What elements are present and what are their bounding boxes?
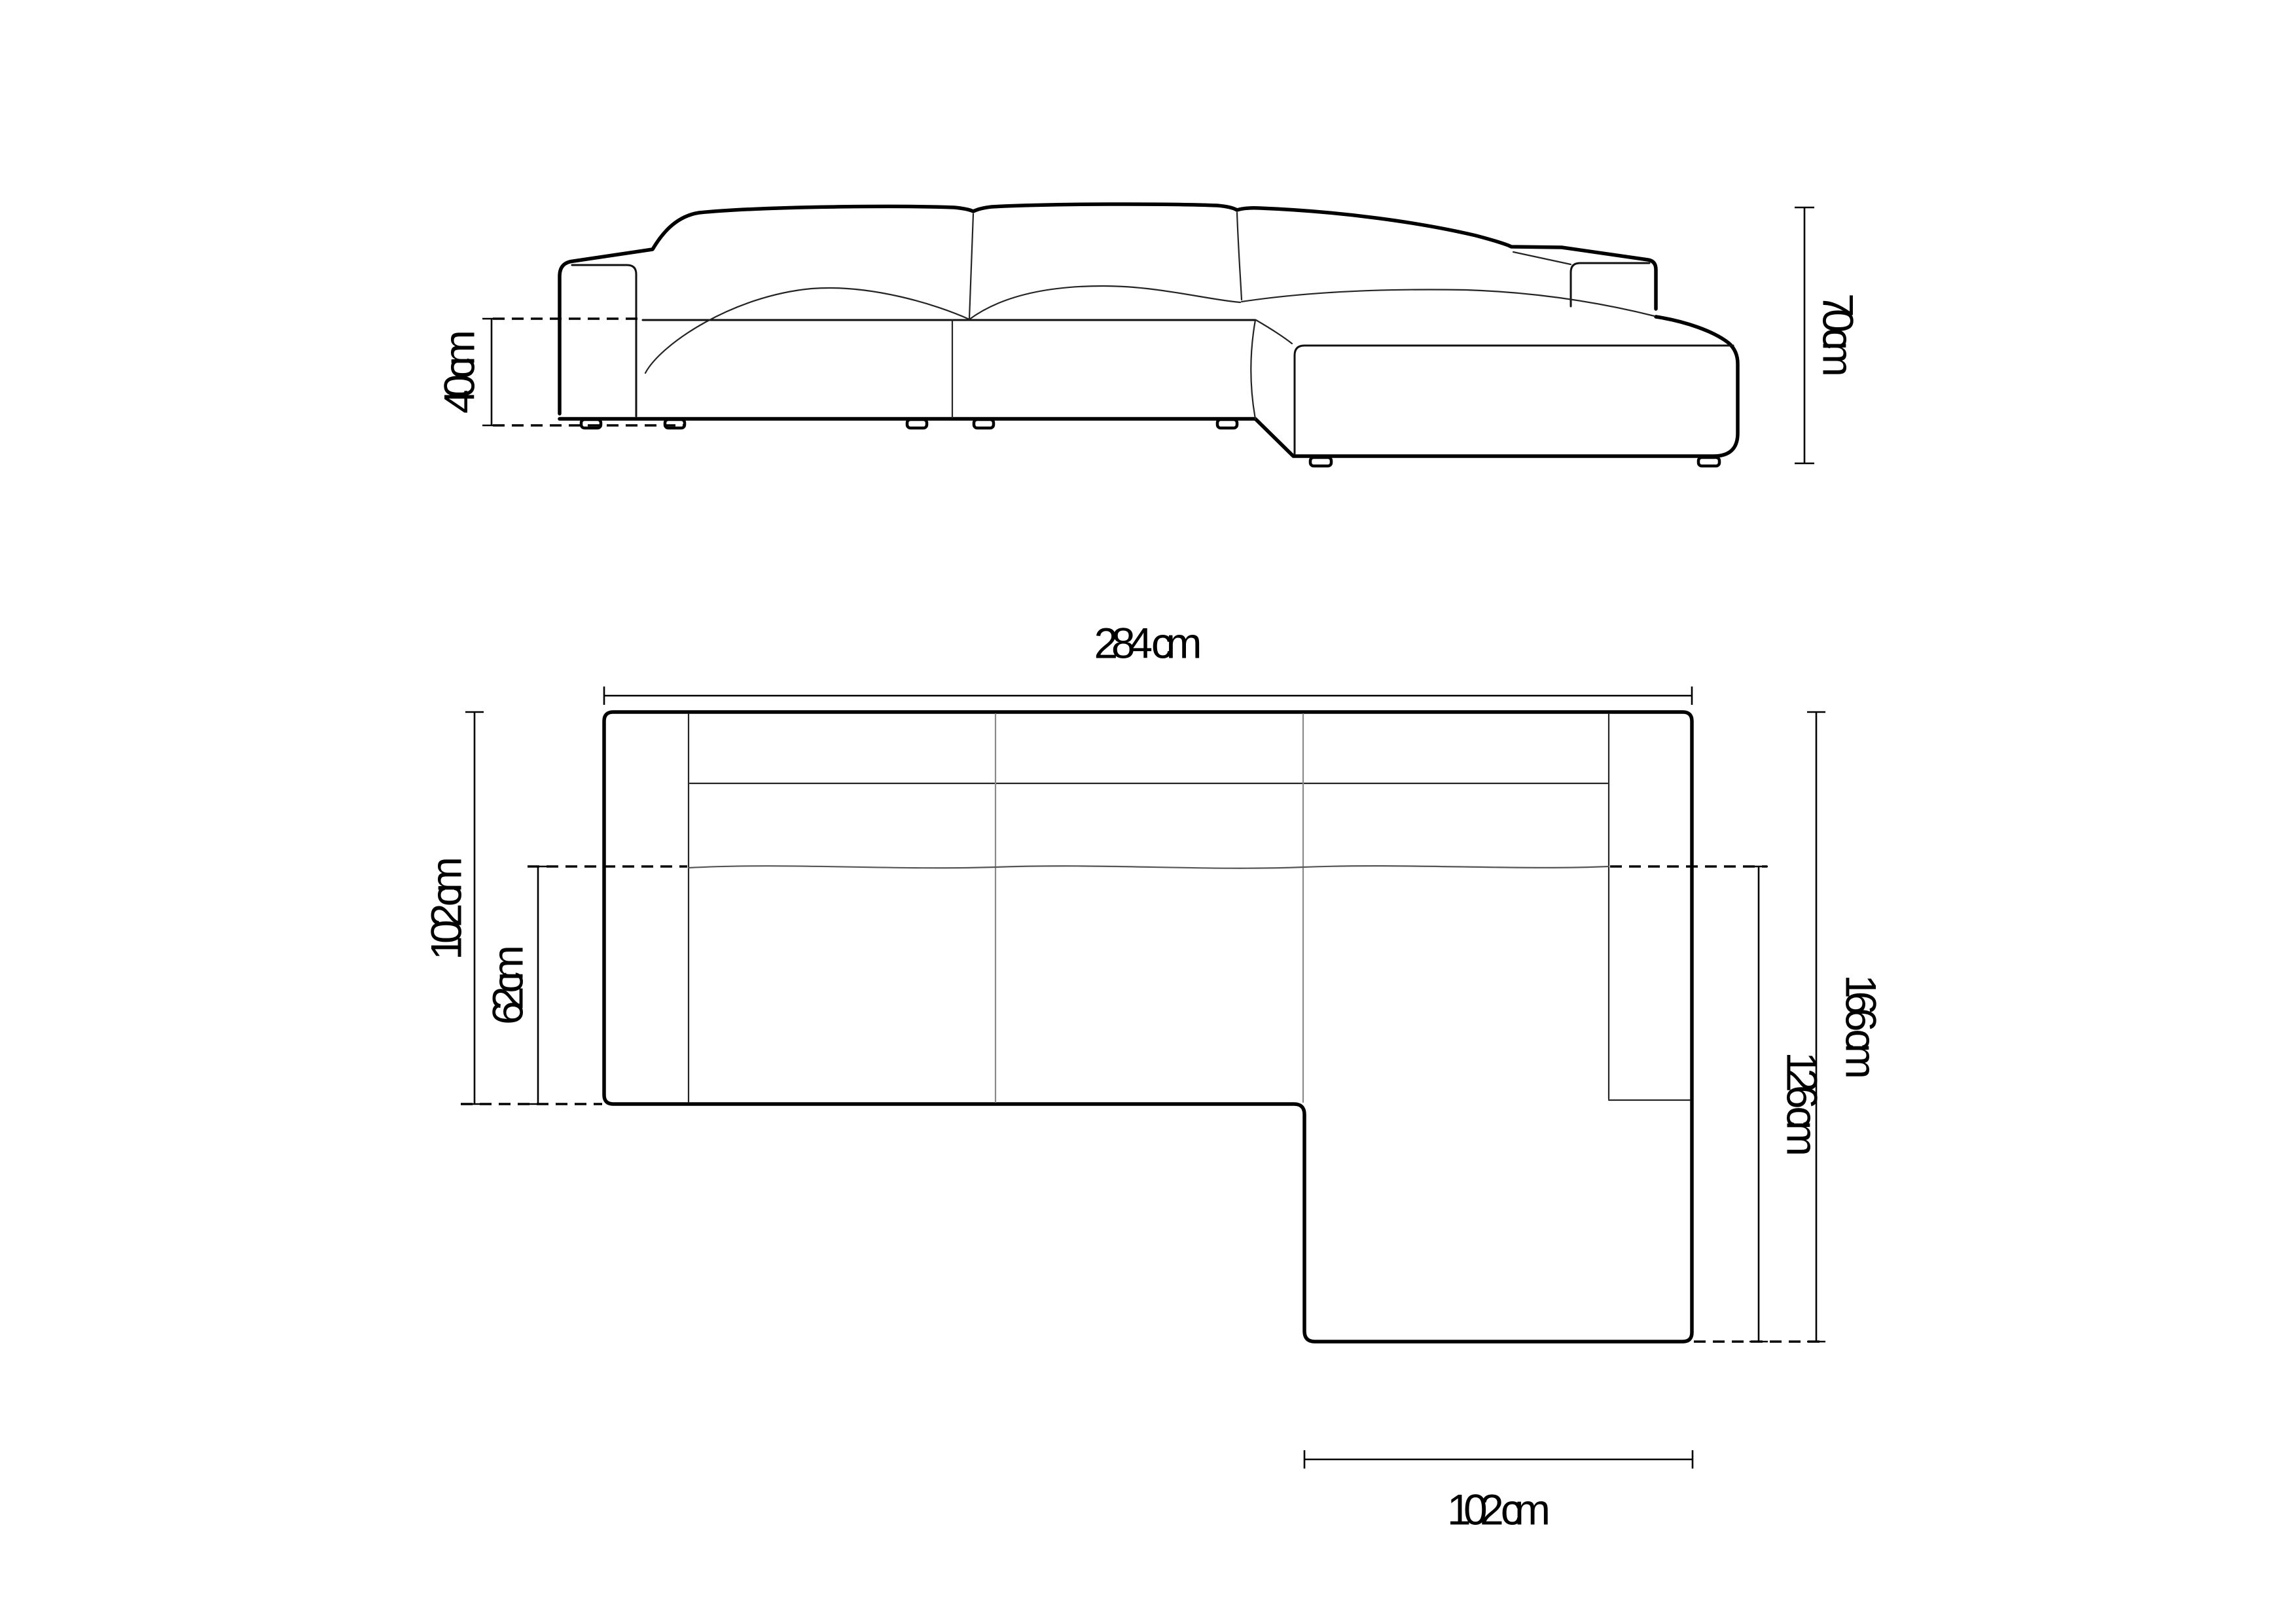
- plan-outline: [604, 712, 1692, 1342]
- dimension-seat-depth: 62 cm: [461, 866, 687, 1104]
- chaise-width-label: 102 cm: [1447, 1485, 1551, 1533]
- total-width-label: 284 cm: [1094, 618, 1202, 667]
- sofa-dimension-diagram: 40 cm 70 cm 284 cm: [0, 0, 2296, 1623]
- sofa-foot: [974, 419, 994, 428]
- sofa-foot: [1310, 457, 1331, 466]
- seat-seam-2: [1251, 320, 1255, 419]
- chaise-total-depth-label: 166 cm: [1837, 974, 1886, 1079]
- chaise-cushion-curve: [1242, 289, 1655, 316]
- dimension-total-width: 284 cm: [604, 618, 1692, 705]
- right-armrest-front-face: [1571, 263, 1649, 306]
- drawing-page: 40 cm 70 cm 284 cm: [0, 0, 2296, 1623]
- sofa-foot: [1217, 419, 1237, 428]
- sofa-foot: [1698, 457, 1719, 466]
- side-depth-label: 102 cm: [422, 857, 470, 960]
- sofa-foot: [665, 419, 685, 428]
- plan-cushion-front-edge: [689, 866, 1609, 868]
- dimension-chaise-total-depth: 166 cm: [1807, 712, 1886, 1342]
- dimension-chaise-width: 102 cm: [1304, 1450, 1693, 1533]
- back-cushion-curve-2: [969, 286, 1240, 319]
- right-armrest-top-edge: [1513, 252, 1571, 264]
- chaise-front-face: [1295, 346, 1733, 454]
- top-plan-view: 284 cm 102 cm 62 cm 166 cm 1: [422, 618, 1885, 1533]
- chaise-left-shoulder-seam: [1256, 320, 1292, 344]
- front-elevation-view: 40 cm 70 cm: [435, 204, 1862, 466]
- seat-depth-label: 62 cm: [483, 945, 531, 1025]
- sofa-foot: [581, 419, 601, 428]
- dimension-side-depth: 102 cm: [422, 712, 484, 1104]
- dimension-chaise-inner-depth: 126 cm: [1610, 866, 1827, 1342]
- back-cushion-curve-1: [645, 288, 969, 373]
- sofa-outline-top: [560, 204, 1656, 414]
- sofa-foot: [907, 419, 927, 428]
- seat-height-label: 40 cm: [435, 330, 483, 414]
- back-cushion-divider-2: [1237, 213, 1242, 300]
- dimension-total-height: 70 cm: [1795, 207, 1863, 463]
- sofa-outline-bottom: [560, 317, 1738, 456]
- total-height-label: 70 cm: [1814, 293, 1863, 377]
- back-cushion-divider-1: [969, 214, 973, 319]
- left-armrest-front-face: [572, 265, 636, 416]
- chaise-inner-depth-label: 126 cm: [1778, 1052, 1827, 1156]
